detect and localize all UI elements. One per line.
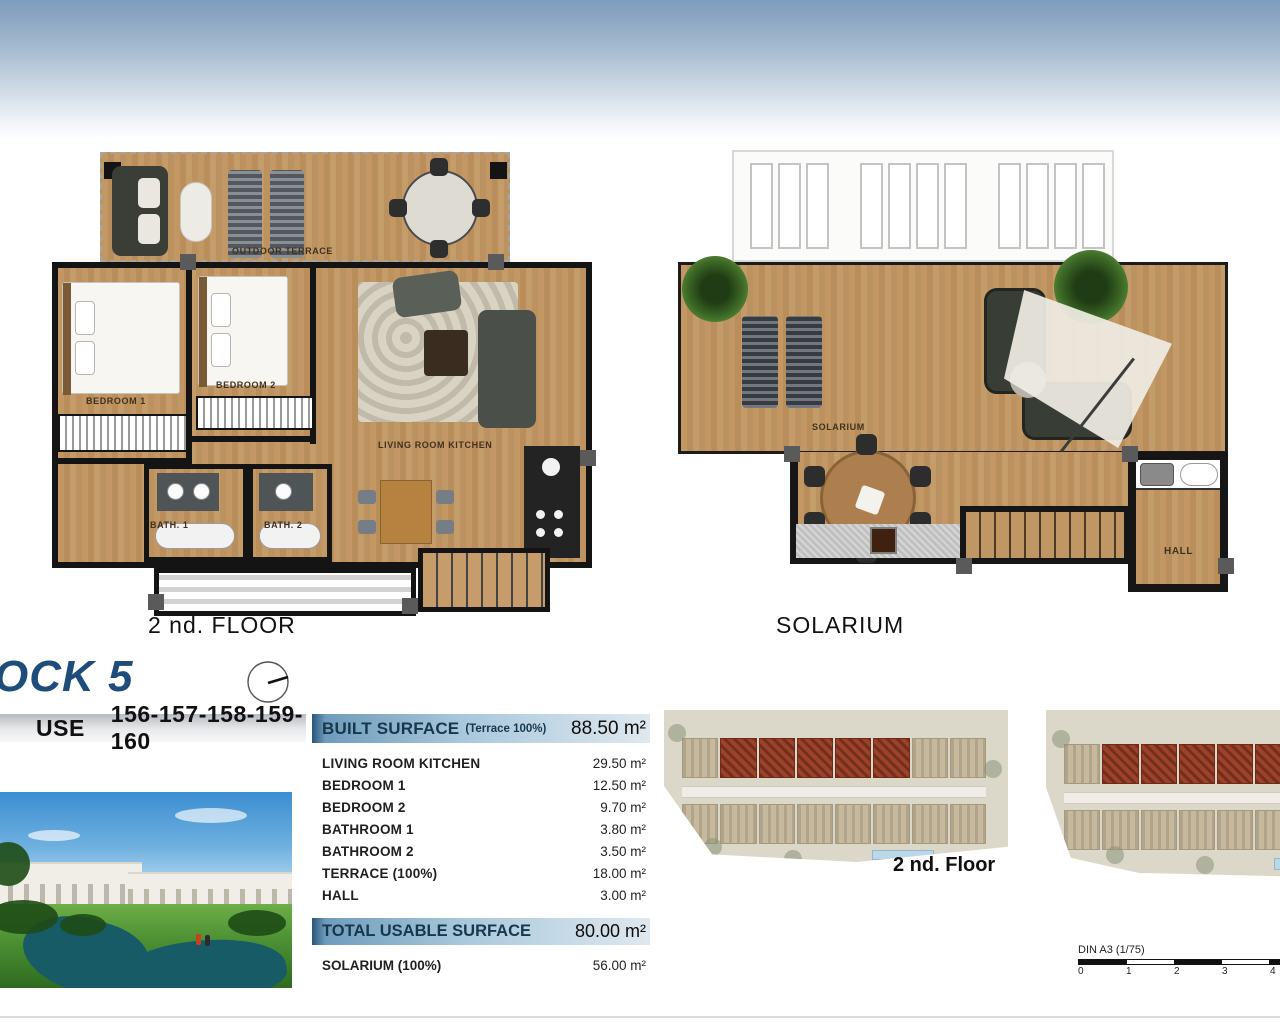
- siteplan-building-row: [682, 804, 986, 844]
- bath2-label: BATH. 2: [264, 520, 303, 530]
- wall-pier: [1122, 446, 1138, 462]
- north-arrow-icon: [246, 660, 290, 704]
- scale-ticks: 0 1 2 3 4: [1078, 966, 1280, 977]
- siteplan-2nd-floor-caption: 2 nd. Floor: [893, 854, 995, 877]
- siteplan-road: [682, 786, 986, 798]
- terrace-chair: [472, 199, 490, 217]
- bottom-balcony: [154, 568, 416, 616]
- sky-gradient-band: [0, 0, 1280, 140]
- house-label: USE: [36, 715, 85, 742]
- wall-pier: [1218, 558, 1234, 574]
- dining-chair: [436, 520, 454, 534]
- bottom-divider: [0, 1016, 1280, 1018]
- wardrobe-bedroom1: [58, 414, 188, 452]
- table-row: BEDROOM 1 12.50 m²: [312, 774, 650, 796]
- siteplan-2nd-floor: [664, 710, 1008, 862]
- sun-lounger: [270, 170, 304, 258]
- table-row: HALL 3.00 m²: [312, 884, 650, 906]
- sink-icon: [1140, 463, 1174, 486]
- bathroom2: [248, 464, 332, 562]
- cooktop-icon: [1180, 463, 1218, 486]
- house-numbers: 156-157-158-159-160: [111, 701, 306, 755]
- scale-segments: [1078, 959, 1280, 965]
- pergola-slat: [806, 163, 829, 249]
- wall-pier: [956, 558, 972, 574]
- photo-golfer: [196, 934, 201, 945]
- table-row: BATHROOM 1 3.80 m²: [312, 818, 650, 840]
- pergola-slat: [750, 163, 773, 249]
- coffee-table: [424, 330, 468, 376]
- bedroom2-label: BEDROOM 2: [216, 380, 276, 390]
- surface-table: BUILT SURFACE (Terrace 100%) 88.50 m² LI…: [312, 714, 650, 975]
- pergola-slat: [998, 163, 1021, 249]
- terrace-dining-table: [402, 170, 478, 246]
- built-surface-note: (Terrace 100%): [465, 723, 546, 735]
- pergola-slat: [888, 163, 911, 249]
- kitchen-counter: [524, 446, 580, 558]
- block-title: OCK 5: [0, 652, 133, 702]
- siteplan-building-row: [1064, 810, 1280, 850]
- siteplan-pool: [1274, 858, 1280, 870]
- bathroom1: [144, 464, 248, 562]
- interior-wall: [192, 436, 316, 442]
- bath1-label: BATH. 1: [150, 520, 189, 530]
- pergola-slat: [916, 163, 939, 249]
- terrace-sofa: [112, 166, 168, 256]
- photo-golfer: [205, 935, 210, 946]
- solarium-room-label: SOLARIUM: [812, 422, 865, 432]
- living-room-kitchen-label: LIVING ROOM KITCHEN: [378, 440, 492, 450]
- dining-chair: [436, 490, 454, 504]
- table-row: LIVING ROOM KITCHEN 29.50 m²: [312, 752, 650, 774]
- sun-lounger: [742, 316, 778, 408]
- solarium-chair: [856, 434, 877, 455]
- wall-pier: [488, 254, 504, 270]
- built-surface-value: 88.50 m²: [571, 718, 646, 740]
- sun-lounger: [786, 316, 822, 408]
- bbq: [870, 527, 897, 554]
- apartment-body: BEDROOM 1 BEDROOM 2 LIVING ROOM KITCHEN: [52, 262, 592, 568]
- wall-pier: [402, 598, 418, 614]
- scale-bar: DIN A3 (1/75) 0 1 2 3 4: [1078, 944, 1280, 977]
- solarium-surface-row: SOLARIUM (100%) 56.00 m²: [312, 955, 650, 975]
- pergola: [732, 150, 1114, 262]
- table-row: TERRACE (100%) 18.00 m²: [312, 862, 650, 884]
- outdoor-terrace-label: OUTDOOR TERRACE: [232, 246, 333, 256]
- bedroom1-label: BEDROOM 1: [86, 396, 146, 406]
- terrace-chair: [430, 158, 448, 176]
- wardrobe-bedroom2: [196, 396, 314, 430]
- living-sofa: [478, 310, 536, 428]
- wall-pier: [784, 446, 800, 462]
- pergola-slat: [1082, 163, 1105, 249]
- solarium-caption: SOLARIUM: [776, 612, 904, 639]
- bed-bedroom1: [62, 282, 180, 394]
- house-numbers-strip: USE 156-157-158-159-160: [0, 714, 306, 742]
- terrace-chair: [430, 240, 448, 258]
- built-surface-label: BUILT SURFACE: [322, 719, 459, 739]
- dining-chair: [358, 490, 376, 504]
- table-row: BATHROOM 2 3.50 m²: [312, 840, 650, 862]
- table-row: BEDROOM 2 9.70 m²: [312, 796, 650, 818]
- plant: [682, 256, 748, 322]
- hall-label: HALL: [1164, 546, 1193, 557]
- floorplan-2nd-floor: OUTDOOR TERRACE BEDROOM 1 BEDROOM 2: [52, 150, 642, 622]
- wall-pier: [580, 450, 596, 466]
- dining-table: [380, 480, 432, 544]
- siteplan-building-row: [1064, 744, 1280, 784]
- stairs: [418, 548, 550, 612]
- golf-resort-photo: [0, 792, 292, 988]
- hall-room: HALL: [1128, 452, 1228, 592]
- kitchenette: [1136, 460, 1220, 490]
- bed-bedroom2: [198, 276, 288, 386]
- scale-label: DIN A3 (1/75): [1078, 944, 1280, 956]
- pergola-slat: [944, 163, 967, 249]
- outdoor-terrace-area: OUTDOOR TERRACE: [100, 152, 510, 262]
- siteplan-road: [1064, 792, 1280, 804]
- dining-chair: [358, 520, 376, 534]
- solarium-chair: [804, 466, 825, 487]
- total-usable-surface-row: TOTAL USABLE SURFACE 80.00 m²: [312, 918, 650, 945]
- pergola-slat: [1054, 163, 1077, 249]
- wall-pier: [490, 162, 507, 179]
- floor2-caption: 2 nd. FLOOR: [148, 612, 296, 639]
- solarium-chair: [910, 466, 931, 487]
- floorplan-solarium: HALL SOLARIUM: [672, 150, 1234, 622]
- pergola-slat: [860, 163, 883, 249]
- pergola-slat: [1026, 163, 1049, 249]
- wall-pier: [148, 594, 164, 610]
- terrace-table: [180, 182, 212, 242]
- wall-pier: [180, 254, 196, 270]
- plan-sheet-page: OUTDOOR TERRACE BEDROOM 1 BEDROOM 2: [0, 0, 1280, 1024]
- stairs: [960, 506, 1130, 564]
- siteplan-building-row: [682, 738, 986, 778]
- pergola-slat: [778, 163, 801, 249]
- concrete-strip: [796, 524, 972, 558]
- built-surface-header: BUILT SURFACE (Terrace 100%) 88.50 m²: [312, 714, 650, 743]
- terrace-chair: [389, 199, 407, 217]
- siteplan-solarium: [1046, 710, 1280, 878]
- surface-rows: LIVING ROOM KITCHEN 29.50 m² BEDROOM 1 1…: [312, 743, 650, 906]
- photo-building: [128, 872, 292, 908]
- sun-lounger: [228, 170, 262, 258]
